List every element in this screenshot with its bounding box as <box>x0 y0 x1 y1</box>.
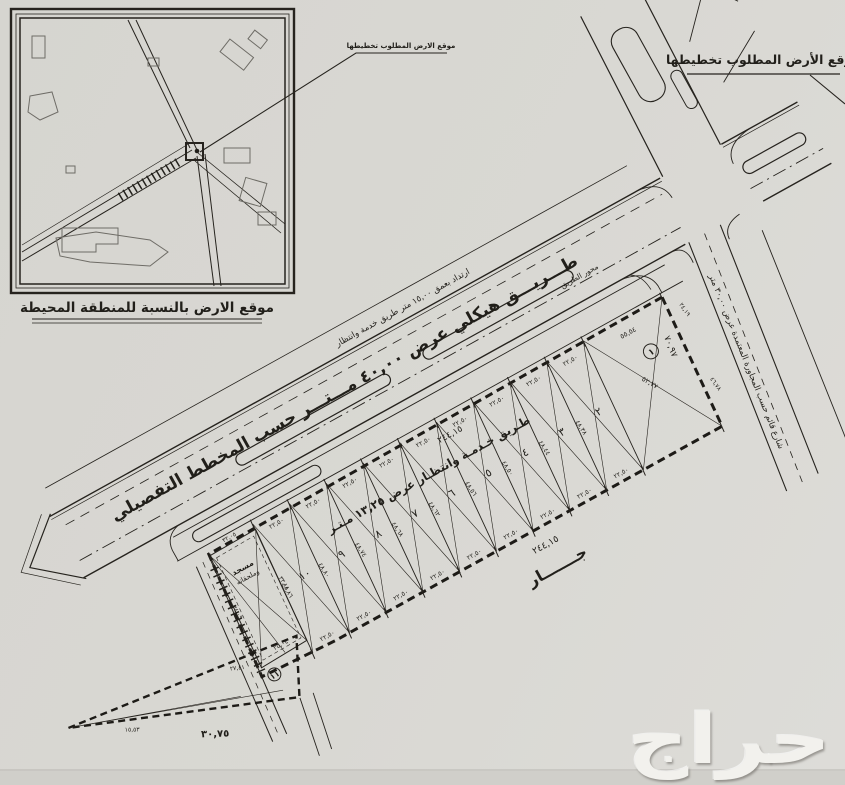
inset-subdivision-strip <box>120 161 180 197</box>
tail-outline <box>68 610 323 785</box>
plot-1-top-dim: ٥٥,٥٤ <box>619 325 638 340</box>
haraj-watermark: حراج <box>628 695 831 785</box>
plot-width-bottom: ٢٢,٥٠ <box>539 506 557 521</box>
plot-number: ٧ <box>409 506 421 520</box>
tail-dim-a: ١٥,٥٣ <box>125 726 141 733</box>
road-left-end-chevron <box>12 514 86 600</box>
site-pointer-label: موقع الأرض المطلوب تخطيطها <box>666 52 845 67</box>
plot-width-top: ٢٢,٥٠ <box>414 435 432 450</box>
plot-number: ١٠ <box>296 566 313 583</box>
setback-line <box>45 166 627 488</box>
inset-outer-border <box>11 9 294 293</box>
tail-dim: ٣٠,٧٥ <box>201 728 230 740</box>
plot-number: ٢ <box>593 405 605 419</box>
inset-map: موقع الارض المطلوب تخطيطها موقع الارض با… <box>11 9 455 323</box>
median-island-3 <box>741 131 809 176</box>
dim-top: ٢٤٤,١٥ <box>436 424 465 446</box>
plot-width-top: ٢٢,٥٠ <box>561 353 579 368</box>
scanned-subdivision-plan: موقع الارض المطلوب تخطيطها موقع الارض با… <box>0 0 845 785</box>
plot-number: ٩ <box>336 547 348 561</box>
left-street-edge-1 <box>181 567 289 742</box>
road-left-end-chevron-outer <box>1 514 81 607</box>
mosque-block: مسجد وملحقاته ٣٣,١٨ ٢٥,٠٤ ٣٤,٠٩ ٣٢,٠٥ <box>197 520 318 668</box>
plot-width-bottom: ٢٢,٥٠ <box>392 588 410 603</box>
plot-width-bottom: ٢٢,٥٠ <box>355 608 373 623</box>
main-plan: ارتداد بعمق ١٥,٠٠ متر طريق خدمة وانتظار … <box>0 0 845 785</box>
plot-diag-dim: ٤٨,٧٤ <box>353 541 368 559</box>
inset-pointer-label: موقع الارض المطلوب تخطيطها <box>347 42 456 50</box>
plot-1-number: ١ <box>647 347 657 358</box>
plot-number: ٦ <box>446 486 458 500</box>
side-street-edges <box>658 225 845 491</box>
plot-number: ٨ <box>373 527 385 541</box>
dim-bottom: ٢٤٤,١٥ <box>531 533 561 556</box>
inset-pointer-leader-line <box>200 53 447 152</box>
plot-diag-dim: ٤٨,٨٠ <box>316 561 331 579</box>
plot-number: ٤ <box>519 445 531 459</box>
plot-diag-dim: ٤٨,٦٨ <box>390 520 406 538</box>
cross-street-island-1 <box>607 23 670 107</box>
plot-1-diagonal-dim: ٥٢,٧٧ <box>640 375 659 391</box>
far-street-edge <box>736 230 845 454</box>
plot-number: ٣ <box>556 425 568 439</box>
bottom-boundary-ticks <box>310 422 726 659</box>
plot-1: ١ ٥٥,٥٤ ٥٢,٧٧ ٢٤,١٩ ٤٦,٧٨ <box>615 298 731 423</box>
plot-width-top: ٢٢,٥٠ <box>525 374 543 389</box>
dim-right: ٧٠,٩٧ <box>661 335 679 359</box>
inset-site-marker <box>195 149 200 154</box>
plot-width-top: ٢٢,٥٠ <box>488 394 506 409</box>
plot-number: ٥ <box>483 466 495 480</box>
plot-diag-dim: ٤٨,٤٤ <box>537 439 552 457</box>
property-boundary: ٢٤٤,١٥ ٢٤٤,١٥ ٧٠,٩٧ جـــــــار <box>193 293 757 726</box>
plot-1-edge-dim-a: ٢٤,١٩ <box>677 302 691 318</box>
plot-width-bottom: ٢٢,٥٠ <box>502 527 520 542</box>
tail-parcel: ١١ ٣٠,٧٥ ١٥,٥٣ ٢٧,٤١ <box>68 610 324 785</box>
plot-1-edge-dim-b: ٤٦,٧٨ <box>708 376 723 393</box>
plot-diag-dim: ٤٨,٥٠ <box>500 459 515 477</box>
cross-street-upper-edges <box>575 0 724 177</box>
inset-roads <box>22 20 285 286</box>
tail-dim-b: ٢٧,٤١ <box>229 664 245 673</box>
inset-caption: موقع الارض بالنسبة للمنطقة المحيطة <box>20 300 274 316</box>
road-bottom-edge <box>84 163 832 578</box>
plot-width-top: ٢٢,٥٠ <box>378 455 396 470</box>
plot-diag-dim: ٤٨,٣٨ <box>573 419 589 437</box>
site-pointer-leader-line <box>810 75 845 104</box>
main-road: ارتداد بعمق ١٥,٠٠ متر طريق خدمة وانتظار … <box>0 78 834 607</box>
inset-buildings <box>28 30 276 266</box>
plot-diag-dim: ٤٨,٥٦ <box>463 480 479 498</box>
plan-drawing: موقع الارض المطلوب تخطيطها موقع الارض با… <box>0 0 845 785</box>
plot-diag-dim: ٤٨,٦٢ <box>426 500 442 518</box>
site-pointer: موقع الأرض المطلوب تخطيطها <box>666 52 845 104</box>
side-street-centerline <box>674 234 833 483</box>
left-street-south-leg <box>290 691 341 756</box>
